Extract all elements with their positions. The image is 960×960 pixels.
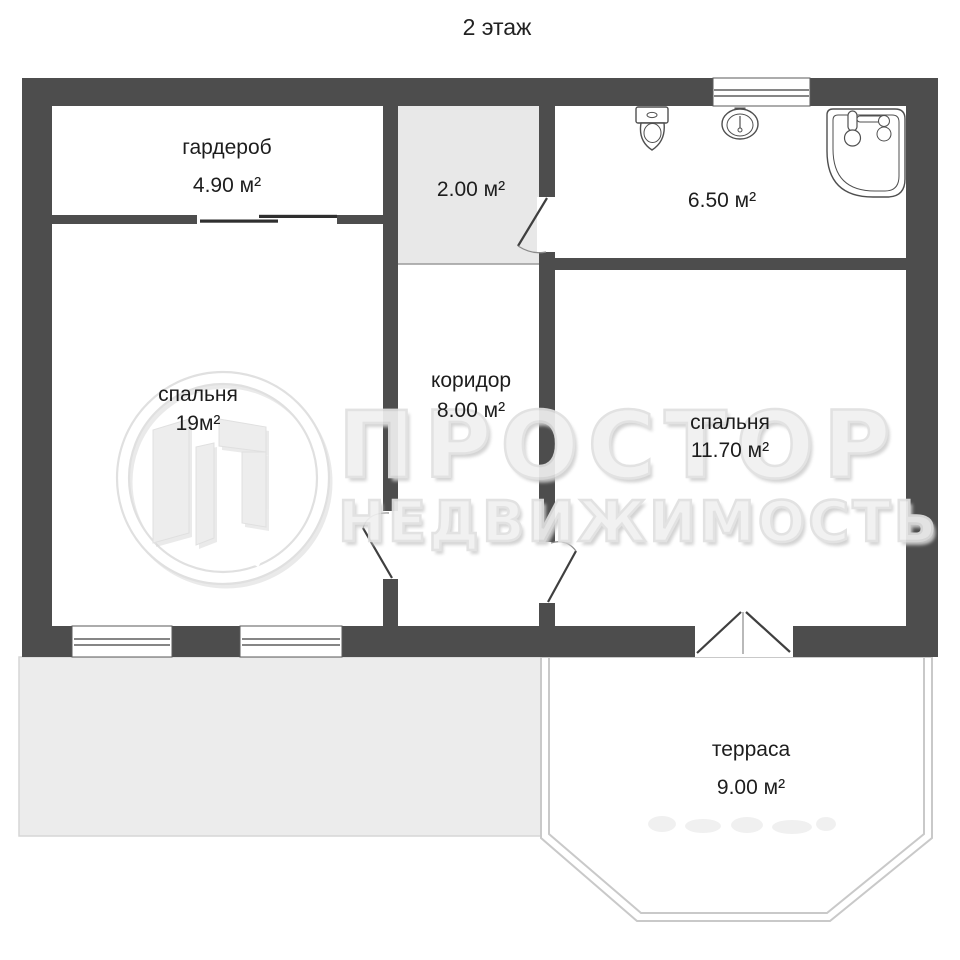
room-area: 19м² <box>158 413 238 435</box>
room-label-vestibule: 2.00 м² <box>437 179 505 201</box>
bathroom-window <box>713 78 810 106</box>
watermark-subtitle: НЕДВИЖИМОСТЬ <box>338 490 939 555</box>
room-area: 6.50 м² <box>688 190 756 212</box>
room-label-corridor: коридор 8.00 м² <box>431 370 511 422</box>
roof-footprint <box>19 657 545 836</box>
room-name: спальня <box>690 412 770 434</box>
wardrobe-sliding-door <box>197 213 337 225</box>
room-area: 11.70 м² <box>690 440 770 462</box>
room-area: 2.00 м² <box>437 179 505 201</box>
floor-plan-page: ПРОСТОР НЕДВИЖИМОСТЬ 2 этаж гардероб 4.9… <box>0 0 960 960</box>
room-area: 9.00 м² <box>712 777 790 799</box>
watermark-brand: ПРОСТОР <box>338 392 900 499</box>
bedroom-window-1 <box>72 626 172 657</box>
logo-panels <box>153 419 269 549</box>
room-name: спальня <box>158 384 238 406</box>
room-name: гардероб <box>182 137 271 159</box>
bedroom-window-2 <box>240 626 342 657</box>
bathtub-icon <box>827 109 905 197</box>
room-name: терраса <box>712 739 790 761</box>
room-label-terrace: терраса 9.00 м² <box>712 739 790 799</box>
room-area: 4.90 м² <box>182 175 271 197</box>
floor-title: 2 этаж <box>463 14 532 41</box>
sink-icon <box>722 108 758 139</box>
room-label-bedroom-left: спальня 19м² <box>158 384 238 435</box>
room-label-wardrobe: гардероб 4.90 м² <box>182 137 271 197</box>
room-label-bathroom: 6.50 м² <box>688 190 756 212</box>
room-label-bedroom-right: спальня 11.70 м² <box>690 412 770 462</box>
terrace-french-door <box>695 612 793 657</box>
room-name: коридор <box>431 370 511 392</box>
room-area: 8.00 м² <box>431 400 511 422</box>
toilet-icon <box>636 107 668 150</box>
